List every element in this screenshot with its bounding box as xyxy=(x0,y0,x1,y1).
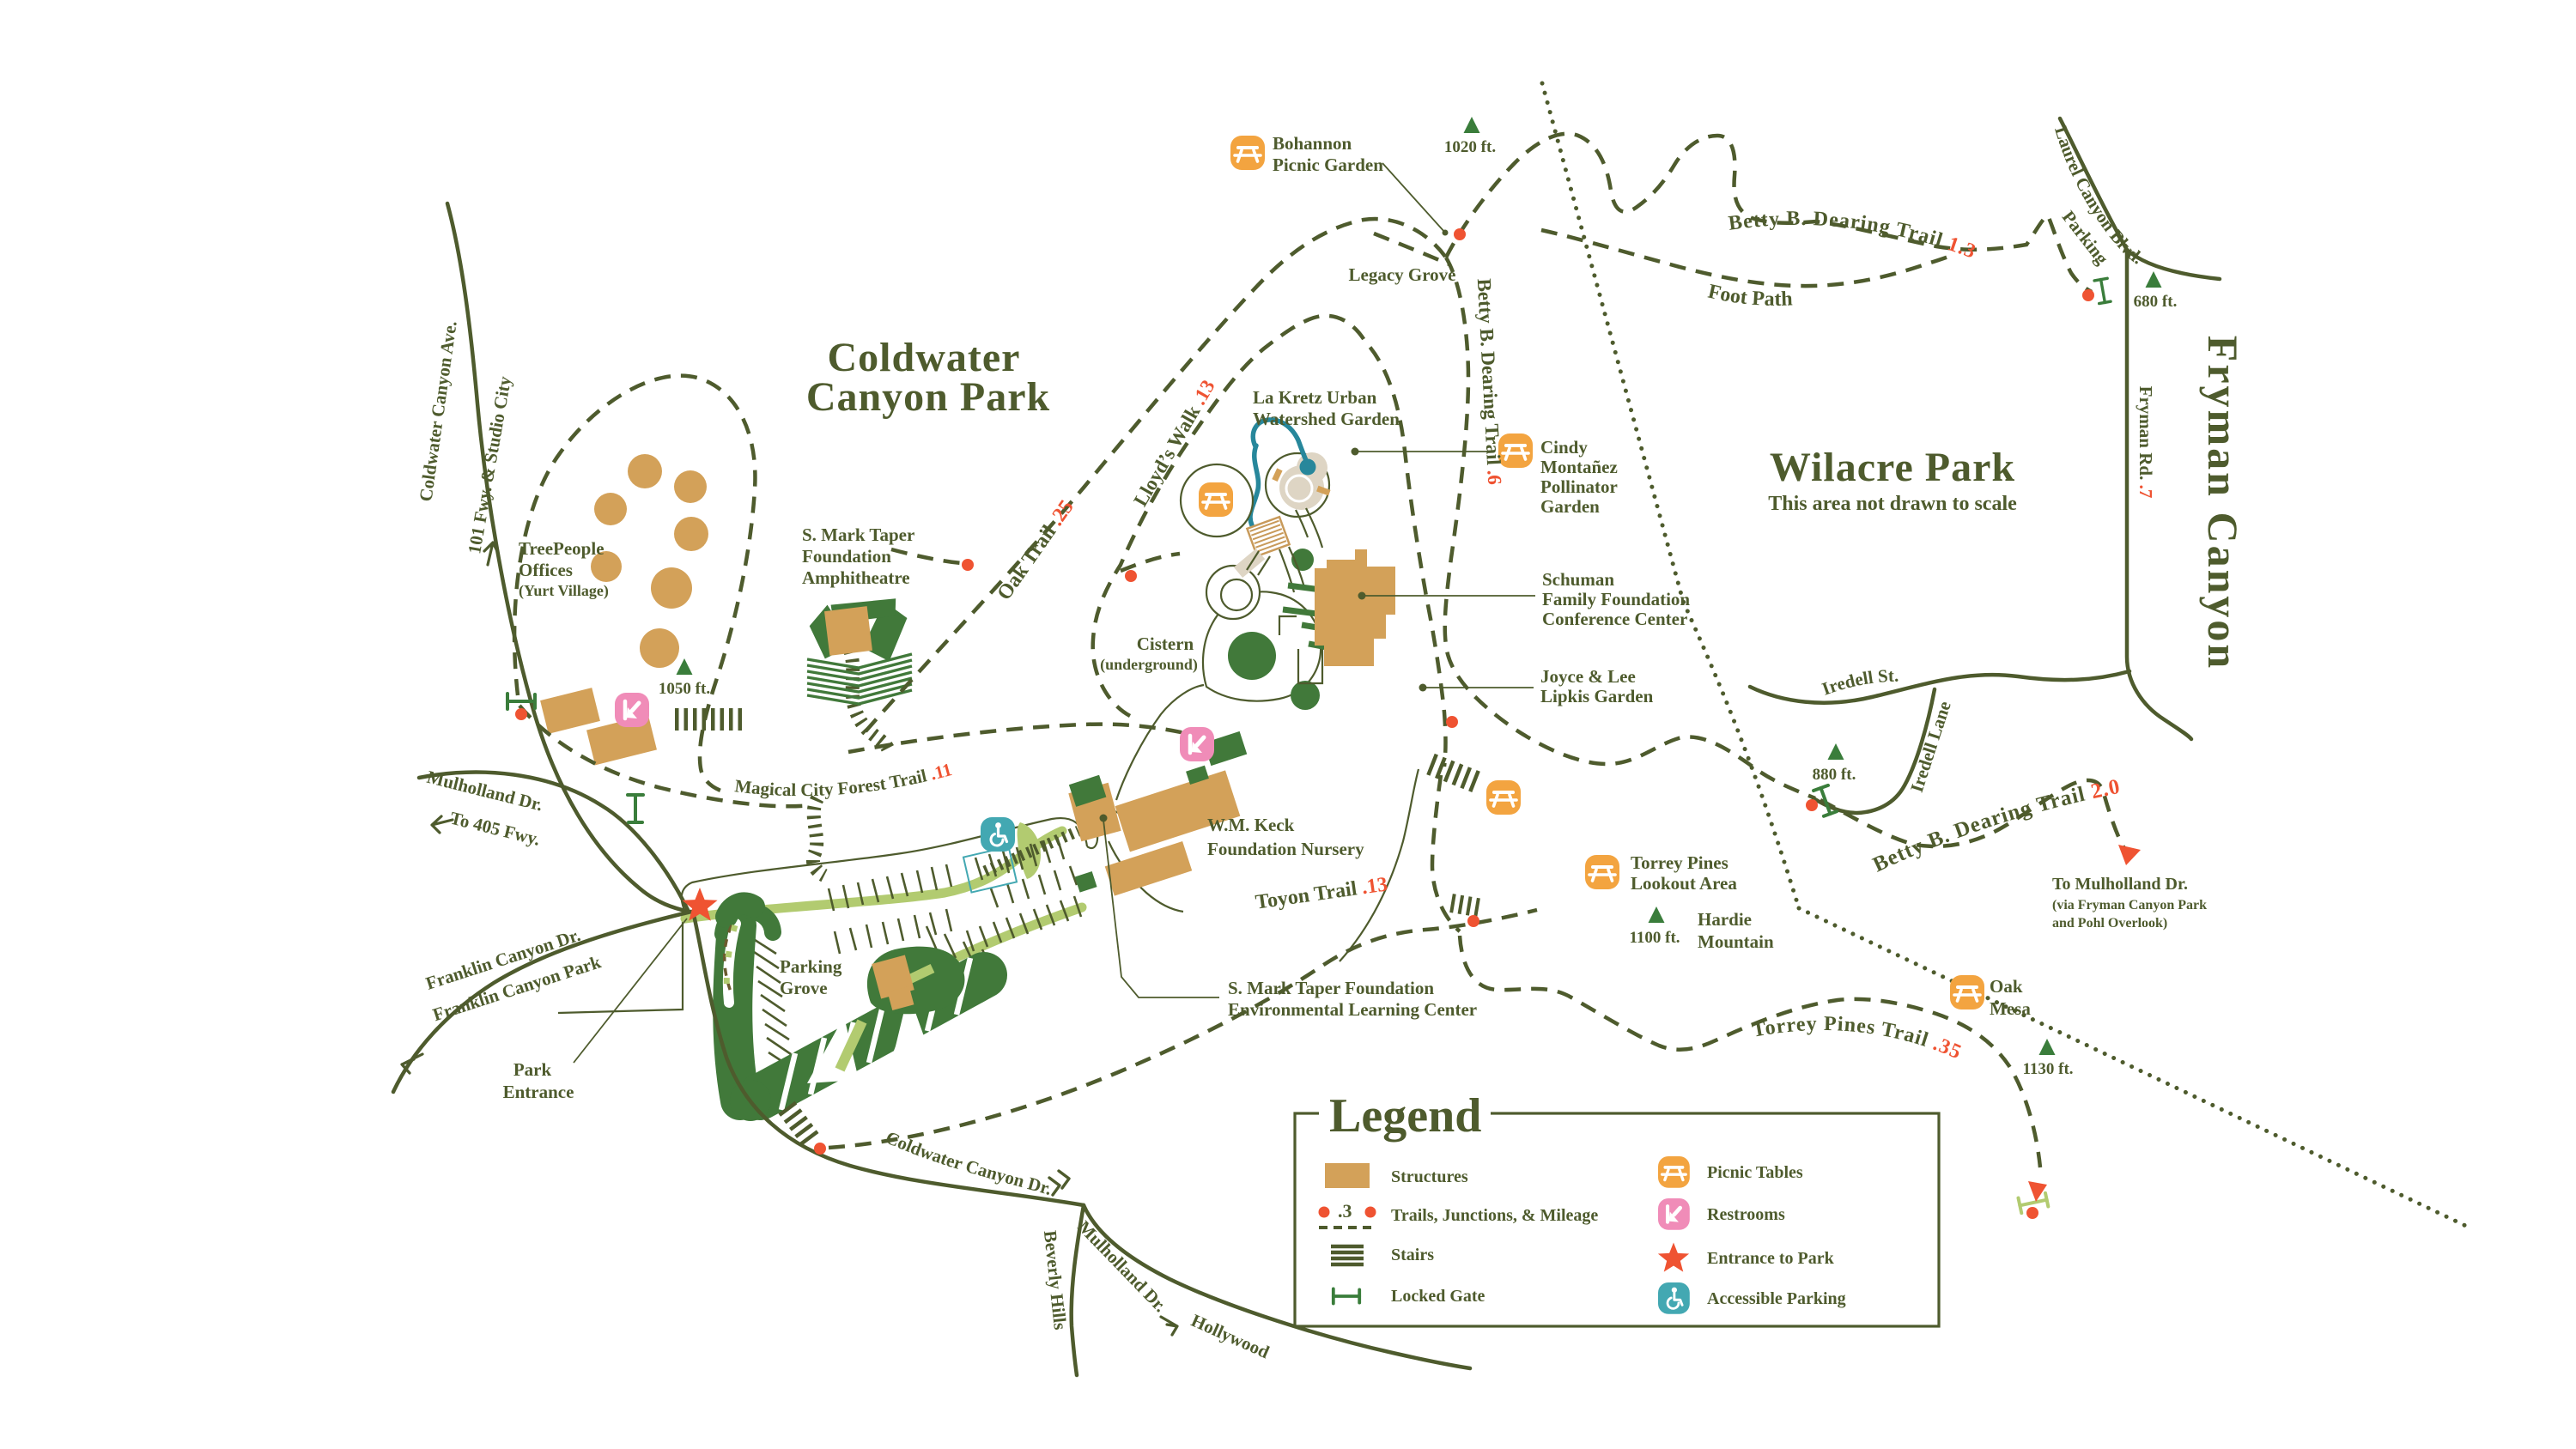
svg-text:1050 ft.: 1050 ft. xyxy=(659,680,710,698)
svg-text:680 ft.: 680 ft. xyxy=(2134,293,2178,311)
svg-text:Montañez: Montañez xyxy=(1540,457,1618,477)
svg-text:Joyce & Lee: Joyce & Lee xyxy=(1540,666,1636,687)
svg-text:Lipkis Garden: Lipkis Garden xyxy=(1540,686,1654,706)
svg-text:W.M. Keck: W.M. Keck xyxy=(1207,815,1295,835)
svg-text:S. Mark Taper Foundation: S. Mark Taper Foundation xyxy=(1228,978,1434,998)
svg-text:Environmental Learning Center: Environmental Learning Center xyxy=(1228,999,1477,1020)
svg-text:Stairs: Stairs xyxy=(1391,1246,1434,1264)
svg-text:1130 ft.: 1130 ft. xyxy=(2022,1060,2073,1078)
svg-text:880 ft.: 880 ft. xyxy=(1813,766,1856,784)
svg-text:Locked Gate: Locked Gate xyxy=(1391,1287,1485,1306)
svg-text:TreePeople: TreePeople xyxy=(519,538,605,559)
svg-text:Entrance: Entrance xyxy=(503,1082,574,1102)
svg-text:La Kretz Urban: La Kretz Urban xyxy=(1253,387,1377,408)
svg-text:Canyon Park: Canyon Park xyxy=(806,374,1050,420)
svg-text:Mesa: Mesa xyxy=(1990,998,2031,1019)
svg-text:Mountain: Mountain xyxy=(1698,931,1774,952)
svg-text:Offices: Offices xyxy=(519,560,573,580)
svg-text:(underground): (underground) xyxy=(1100,656,1198,674)
svg-text:Watershed Garden: Watershed Garden xyxy=(1253,409,1400,429)
svg-text:Amphitheatre: Amphitheatre xyxy=(802,567,910,588)
svg-text:Fryman Rd. .7: Fryman Rd. .7 xyxy=(2136,386,2156,499)
svg-text:Picnic Garden: Picnic Garden xyxy=(1273,155,1383,175)
svg-text:Hardie: Hardie xyxy=(1698,909,1752,930)
svg-text:Cistern: Cistern xyxy=(1137,634,1194,654)
svg-text:Fryman Canyon: Fryman Canyon xyxy=(2199,336,2247,670)
svg-text:Foundation: Foundation xyxy=(802,546,891,567)
svg-text:This area not drawn to scale: This area not drawn to scale xyxy=(1768,493,2017,515)
svg-text:Wilacre Park: Wilacre Park xyxy=(1770,445,2015,490)
svg-text:Cindy: Cindy xyxy=(1540,437,1588,458)
svg-text:1100 ft.: 1100 ft. xyxy=(1629,929,1680,947)
svg-text:Oak: Oak xyxy=(1990,976,2023,997)
svg-text:Accessible Parking: Accessible Parking xyxy=(1707,1289,1846,1308)
svg-text:Schuman: Schuman xyxy=(1542,569,1614,590)
svg-text:Conference Center: Conference Center xyxy=(1542,609,1687,629)
svg-text:(Yurt Village): (Yurt Village) xyxy=(519,582,609,600)
svg-text:Garden: Garden xyxy=(1540,496,1600,517)
svg-text:1020 ft.: 1020 ft. xyxy=(1444,138,1496,156)
svg-text:Restrooms: Restrooms xyxy=(1707,1205,1785,1224)
svg-text:To Mulholland Dr.: To Mulholland Dr. xyxy=(2052,875,2188,894)
svg-text:and Pohl Overlook): and Pohl Overlook) xyxy=(2052,916,2167,931)
svg-text:Trails, Junctions, & Mileage: Trails, Junctions, & Mileage xyxy=(1391,1206,1598,1225)
svg-text:Bohannon: Bohannon xyxy=(1273,133,1352,154)
svg-text:S. Mark Taper: S. Mark Taper xyxy=(802,524,914,545)
svg-text:Structures: Structures xyxy=(1391,1167,1468,1186)
svg-text:Legend: Legend xyxy=(1329,1089,1481,1143)
svg-text:Pollinator: Pollinator xyxy=(1540,476,1618,497)
svg-text:Foundation Nursery: Foundation Nursery xyxy=(1207,839,1364,859)
svg-text:Picnic Tables: Picnic Tables xyxy=(1707,1163,1803,1182)
svg-text:Grove: Grove xyxy=(780,978,828,998)
svg-text:(via Fryman Canyon Park: (via Fryman Canyon Park xyxy=(2052,898,2207,912)
svg-text:Torrey Pines: Torrey Pines xyxy=(1631,852,1728,873)
svg-text:Park: Park xyxy=(513,1059,552,1080)
svg-text:Entrance to Park: Entrance to Park xyxy=(1707,1249,1835,1268)
svg-text:Lookout Area: Lookout Area xyxy=(1631,873,1737,894)
svg-text:Family Foundation: Family Foundation xyxy=(1542,589,1690,609)
svg-text:.3: .3 xyxy=(1338,1200,1352,1222)
svg-text:Parking: Parking xyxy=(780,956,842,977)
svg-text:Legacy Grove: Legacy Grove xyxy=(1349,264,1456,285)
